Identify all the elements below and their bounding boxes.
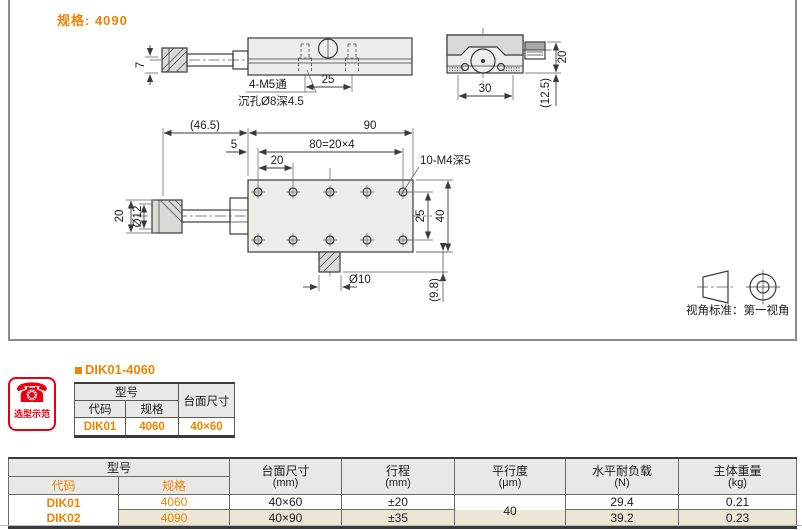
- parallelism-cell: 40: [455, 495, 566, 528]
- size-cell: 40×60: [230, 495, 342, 510]
- phone-icon: ☎: [10, 379, 54, 409]
- example-header-spec: 规格: [126, 401, 179, 418]
- code-dik02: DIK02: [9, 510, 118, 526]
- col-header-weight: 主体重量 (kg): [679, 458, 797, 495]
- example-size: 40×60: [179, 418, 235, 437]
- technical-drawing: 7 4-M5通 沉孔Ø8深4.5 25: [0, 0, 802, 345]
- selection-example-caption: 选型示范: [10, 409, 54, 419]
- example-table: 型号 台面尺寸 代码 规格 DIK01 4060 40×60: [74, 382, 235, 438]
- col-header-code: 代码: [9, 477, 119, 495]
- view-standard-note: 视角标准：第一视角: [686, 303, 790, 317]
- selection-example-badge: ☎ 选型示范: [8, 377, 56, 431]
- dim-side-thread: 4-M5通: [249, 78, 287, 91]
- example-row: DIK01 4060 40×60: [75, 418, 235, 437]
- col-header-spec: 规格: [119, 477, 230, 495]
- code-cell: DIK01 DIK02: [9, 495, 119, 528]
- page-divider: [0, 525, 802, 526]
- spec-table: 型号 台面尺寸 (mm) 行程 (mm) 平行度 (μm) 水平耐负载 (N) …: [8, 457, 797, 529]
- end-view: 20 (12.5) 30: [447, 28, 569, 108]
- col-header-travel: 行程 (mm): [342, 458, 455, 495]
- weight-cell: 0.21: [679, 495, 797, 510]
- dim-plan-pitch: 20: [271, 155, 284, 167]
- travel-cell: ±20: [342, 495, 455, 510]
- dim-side-pitch: 25: [322, 74, 335, 86]
- code-dik01: DIK01: [9, 496, 118, 510]
- square-bullet-icon: [75, 367, 82, 374]
- example-code: DIK01: [75, 418, 126, 437]
- side-view: 7 4-M5通 沉孔Ø8深4.5 25: [135, 38, 412, 108]
- example-model-title: DIK01-4060: [75, 362, 155, 377]
- dim-plan-thread: 10-M4深5: [420, 153, 471, 167]
- dim-plan-knob-h: 20: [114, 210, 126, 223]
- dim-end-width: 30: [479, 83, 492, 95]
- dim-plan-knob-len: (46.5): [190, 120, 220, 132]
- table-row: DIK01 DIK02 4060 40×60 ±20 40 29.4 0.21: [9, 495, 797, 510]
- example-header-size: 台面尺寸: [179, 383, 235, 418]
- dim-end-offset: (12.5): [540, 78, 552, 108]
- dim-plan-edge: 5: [231, 139, 237, 151]
- example-model-number: DIK01-4060: [85, 362, 155, 377]
- load-cell: 29.4: [566, 495, 679, 510]
- dim-plan-row-pitch: 25: [415, 210, 427, 223]
- dim-plan-body-w: 40: [435, 210, 447, 223]
- catalog-page: 规格: 4090 7 4-M5通: [0, 0, 802, 530]
- dim-plan-lock-dia: Ø10: [349, 274, 371, 286]
- col-header-size: 台面尺寸 (mm): [230, 458, 342, 495]
- col-header-model: 型号: [9, 458, 230, 477]
- example-header-code: 代码: [75, 401, 126, 418]
- col-header-parallelism: 平行度 (μm): [455, 458, 566, 495]
- example-spec: 4060: [126, 418, 179, 437]
- dim-end-height: 20: [557, 51, 569, 64]
- dim-side-height: 7: [135, 62, 147, 68]
- example-header-model: 型号: [75, 383, 179, 401]
- first-angle-symbol: 视角标准：第一视角: [686, 270, 790, 317]
- col-header-load: 水平耐负载 (N): [566, 458, 679, 495]
- dim-plan-body-len: 90: [364, 120, 377, 132]
- plan-view: (46.5) 90 80=20×4 5 20 10-M4深5 20 Ø12 25: [114, 120, 471, 302]
- dim-side-counterbore: 沉孔Ø8深4.5: [238, 94, 304, 108]
- dim-plan-knob-dia: Ø12: [132, 206, 144, 228]
- dim-plan-pitch-total: 80=20×4: [309, 139, 355, 151]
- spec-cell: 4060: [119, 495, 230, 510]
- dim-plan-lock-len: (9.8): [429, 278, 441, 302]
